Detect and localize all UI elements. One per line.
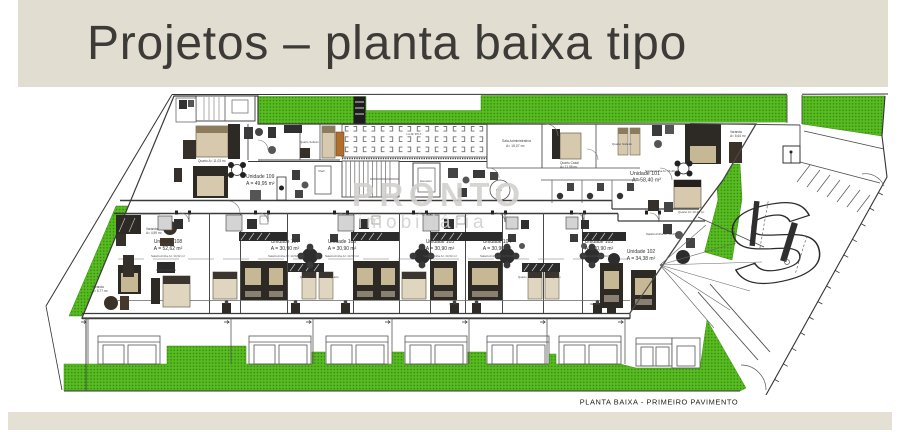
svg-text:A = 30,90 m²: A = 30,90 m² [328,246,357,252]
svg-text:Unidade 109: Unidade 109 [246,174,275,180]
svg-text:SalaCozinha A= 14,52 m²: SalaCozinha A= 14,52 m² [268,254,302,258]
svg-text:Varanda: Varanda [590,302,601,306]
svg-text:Unidade 103: Unidade 103 [585,239,614,245]
svg-text:Quarto: Quarto [330,275,339,279]
svg-text:Unidade 106: Unidade 106 [328,239,357,245]
svg-text:SalaCozinha A= 14,52 m²: SalaCozinha A= 14,52 m² [423,254,457,258]
svg-text:Quarto A= 11,03 m²: Quarto A= 11,03 m² [198,159,226,163]
svg-text:A = 49,95 m²: A = 49,95 m² [246,181,275,187]
svg-text:Shaft: Shaft [318,169,325,173]
svg-text:Varanda: Varanda [449,302,460,306]
svg-text:SalaCozinha A= 14,52 m²: SalaCozinha A= 14,52 m² [480,254,514,258]
svg-text:A = 30,90 m²: A = 30,90 m² [271,246,300,252]
svg-text:PRONTO: PRONTO [352,176,526,213]
svg-text:A = 52,62 m²: A = 52,62 m² [154,246,183,252]
svg-text:Sala Administrativa: Sala Administrativa [502,139,531,143]
svg-text:Unidade 107: Unidade 107 [271,239,300,245]
svg-text:imobiliária: imobiliária [358,212,488,233]
svg-text:LAJE 3PLT: LAJE 3PLT [407,132,422,136]
svg-text:Quarto A= 10,26 m²: Quarto A= 10,26 m² [678,210,704,214]
svg-text:SalaCozinha A= 14,52 m²: SalaCozinha A= 14,52 m² [325,254,359,258]
svg-text:A = 30,90 m²: A = 30,90 m² [483,246,512,252]
svg-text:A= 6,64 m²: A= 6,64 m² [730,134,746,138]
svg-text:Unidade 104: Unidade 104 [483,239,512,245]
svg-text:Unidade 108: Unidade 108 [154,239,183,245]
svg-text:Unidade 102: Unidade 102 [627,249,656,255]
svg-text:A= 58,40 m²: A= 58,40 m² [632,178,661,184]
svg-text:SalaCozinha A= 16,40 m²: SalaCozinha A= 16,40 m² [645,169,679,173]
svg-text:A= 11,56 m²: A= 11,56 m² [560,165,577,169]
svg-text:Quarto: Quarto [552,275,561,279]
svg-text:A= 5,77 m²: A= 5,77 m² [92,289,108,293]
svg-text:Quarto Solteiro: Quarto Solteiro [300,140,319,144]
svg-text:A= 4,59 m²: A= 4,59 m² [146,231,162,235]
svg-text:SalaCozinha A= 14,52 m²: SalaCozinha A= 14,52 m² [151,254,185,258]
svg-text:A = 34,38 m²: A = 34,38 m² [627,256,656,262]
svg-text:A = 30,90 m²: A = 30,90 m² [426,246,455,252]
svg-text:A = 30,90 m²: A = 30,90 m² [585,246,614,252]
svg-text:Projetos – planta baixa tipo: Projetos – planta baixa tipo [87,17,687,70]
svg-text:Quarto: Quarto [300,275,309,279]
svg-text:PLANTA BAIXA - PRIMEIRO PAVIM: PLANTA BAIXA - PRIMEIRO PAVIMENTO [580,398,738,407]
svg-text:Unidade 105: Unidade 105 [426,239,455,245]
svg-text:Quarto: Quarto [518,275,527,279]
svg-text:Quarto Solteiro: Quarto Solteiro [612,142,633,146]
svg-text:A= 15,07 m²: A= 15,07 m² [506,144,525,148]
svg-text:Quarto Solteiro: Quarto Solteiro [156,268,177,272]
